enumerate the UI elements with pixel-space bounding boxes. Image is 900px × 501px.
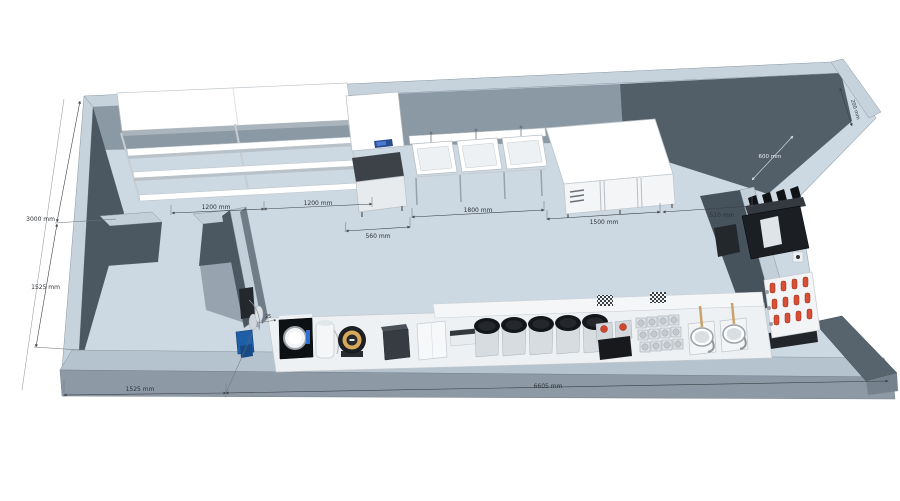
dim-1525-label: 1525 mm [31,284,60,291]
tea-urns [474,314,608,357]
tea-urn [528,316,554,355]
kitchen-3d-plan: 3000 mm 1525 mm 1200 mm 1200 mm 560 mm 1… [0,0,900,501]
backsplash-grille [650,292,666,303]
dim-bay1-label: 1200 mm [202,204,231,211]
plan-canvas: 3000 mm 1525 mm 1200 mm 1200 mm 560 mm 1… [0,0,900,501]
tea-urn [555,315,581,354]
dim-6605-label: 6605 mm [534,383,563,390]
ice-machine-base [356,176,407,212]
sink-leg [504,172,505,199]
sealer-base-box [598,336,632,360]
fridge-top [546,119,673,184]
tea-urn [501,317,527,356]
tap-tower [762,272,820,350]
dim-ext-outer [22,99,64,390]
dim-600-label: 600 mm [759,154,782,160]
tea-urn [474,318,500,357]
coffee-grinder [714,224,740,257]
fridge-counter [546,119,675,218]
blender [381,324,410,360]
sink-leg [416,178,417,205]
dim-25-label: 25 [265,314,271,320]
dim-1800-label: 1800 mm [464,207,493,214]
dim-560-label: 560 mm [365,233,390,240]
pearl-cooker [279,314,313,359]
sink-leg [541,169,542,196]
cooker-blue-tab [306,330,310,344]
dim-1500-label: 1500 mm [590,219,619,226]
dim-3000-label: 3000 mm [26,216,55,223]
sink-leg [460,175,461,202]
partition-stub-face [106,222,162,266]
dim-510-label: 510 mm [709,212,734,219]
backsplash-grille [597,295,613,306]
sealing-machine-round [338,326,366,357]
dim-1525b-label: 1525 mm [126,386,155,393]
dim-bay2-label: 1200 mm [304,200,333,207]
